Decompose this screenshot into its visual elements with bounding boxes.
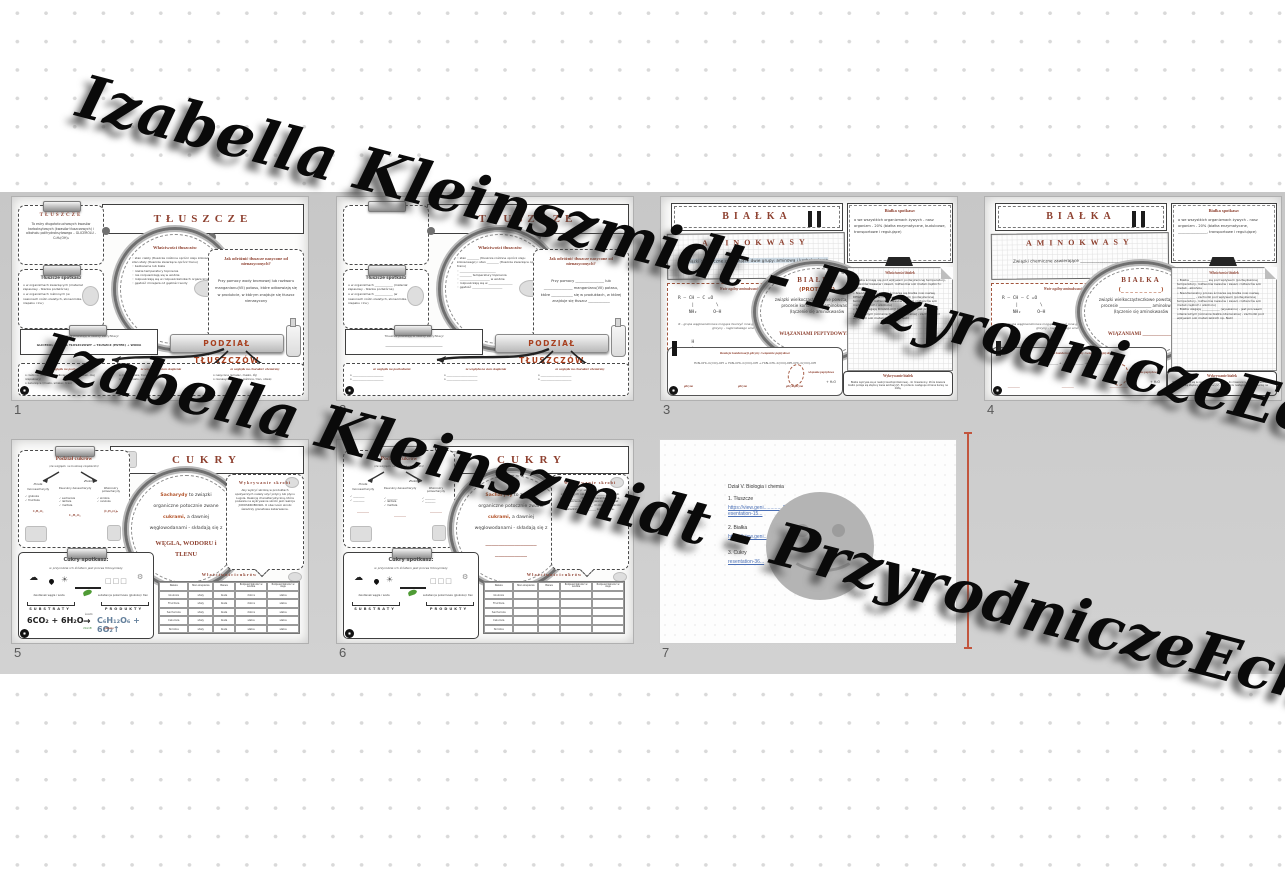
table-cell: słaba xyxy=(235,616,267,625)
slide-number-label: 6 xyxy=(339,645,346,660)
ship-clipart-icon xyxy=(407,286,424,306)
spot-title: Tłuszcze spotkasz xyxy=(344,275,428,280)
definition-box: TŁUSZCZE To estry długołańcuchowych kwas… xyxy=(18,205,104,265)
col1-text: o ______________________ o _____________… xyxy=(350,374,436,382)
detect-title: Wykrywanie białek xyxy=(844,374,952,378)
reaction-box: Reakcja kondensacji glicyny i wiązanie p… xyxy=(667,347,843,396)
table-cell: Skrobia xyxy=(484,625,513,634)
peptide-bond-label: wiązanie peptydowe xyxy=(808,370,834,374)
table-cell: słaba xyxy=(267,608,299,617)
substraty-heading: SUBSTRATY xyxy=(352,607,398,611)
substrates-label: dwutlenek węgla i woda xyxy=(348,594,400,597)
decor-dot-icon xyxy=(427,227,435,235)
substrates-label: dwutlenek węgla i woda xyxy=(23,594,75,597)
sugar-bag-clipart-icon xyxy=(432,525,446,541)
b2a-list: ✓ sacharoza✓ laktoza✓ maltoza xyxy=(59,497,93,507)
leaf-icon xyxy=(407,589,417,597)
list-item: w organizmach ____________ (w nasionach … xyxy=(348,292,408,305)
sugar-cubes-icon: □□□ xyxy=(105,577,128,585)
hole-punch-icon xyxy=(345,629,354,638)
reagent-label: ________ xyxy=(1008,384,1020,388)
table-cell: słaba xyxy=(267,599,299,608)
gear-icon: ⚙ xyxy=(137,573,143,581)
sun-icon: ☀ xyxy=(386,575,393,584)
binder-clip-icon xyxy=(885,257,913,266)
table-cell: stały xyxy=(188,625,213,634)
equation-right: C₆H₁₂O₆ + 6O₂↑ xyxy=(97,616,153,634)
table-cell: słaba xyxy=(235,625,267,634)
spot-title: Cukry spotkasz: xyxy=(19,557,153,563)
protein-spot-box: Białka spotkasz: o we wszystkich organiz… xyxy=(1171,203,1277,263)
b2-label: Złożone xyxy=(65,479,115,483)
slide-number-label: 3 xyxy=(663,402,670,417)
table-cell: słaba xyxy=(267,625,299,634)
table-cell: Rozpuszczalność w oleju xyxy=(267,582,299,591)
b2b-list: ✓ skrobia✓ celuloza xyxy=(97,497,127,504)
list-item: w organizmach zwierzęcych (materiał zapa… xyxy=(23,283,83,291)
circle-line: a dawniej xyxy=(186,515,210,520)
spot-title: Cukry spotkasz: xyxy=(344,557,478,563)
equation-left: 6CO₂ + 6H₂O xyxy=(27,616,84,625)
col2-title: ze względu na stan skupienia xyxy=(442,367,530,371)
equation-condition-top: światło xyxy=(85,613,93,616)
spot-title: Tłuszcze spotkasz xyxy=(19,275,103,280)
properties-text: • Białka ____________ się pod wpływem (p… xyxy=(1177,278,1271,320)
slide-sorter-view: { "watermark": { "text": "Izabella Klein… xyxy=(0,0,1285,869)
table-cell: Celuloza xyxy=(159,616,188,625)
gear-icon: ⚙ xyxy=(462,573,468,581)
b2a-name: Dwucukry dwusacharydy xyxy=(57,487,93,490)
b1-list: ✓ glukoza✓ fruktoza xyxy=(25,495,55,503)
col2-text: o ______________________ o _____________… xyxy=(444,374,530,382)
slide-title: CUKRY xyxy=(111,454,303,466)
table-cell: słaba xyxy=(267,591,299,600)
b1-list: ✓ ________✓ ________ xyxy=(350,495,380,503)
b2a-name: Dwucukry dwusacharydy xyxy=(382,487,418,490)
properties-title: Właściwości białek xyxy=(1172,271,1276,275)
spot-box: Tłuszcze spotkasz w organizmach zwierzęc… xyxy=(18,269,104,329)
photosynthesis-box: Cukry spotkasz: w przyrodzie ich źródłem… xyxy=(343,552,479,639)
table-cell: dobra xyxy=(235,599,267,608)
spot-list: w organizmach zwierzęcych (materiał zapa… xyxy=(23,283,83,306)
table-cell xyxy=(513,608,538,617)
table-cell xyxy=(538,591,560,600)
spot-text: o we wszystkich organizmach żywych - nas… xyxy=(854,217,946,235)
table-cell: słaba xyxy=(267,616,299,625)
table-cell xyxy=(592,599,624,608)
b2b-name: Wielocukry polisacharydy xyxy=(95,487,127,494)
ship-clipart-icon xyxy=(82,286,99,306)
ester-title: Tłuszcze powstają w reakcji estryfikacji xyxy=(346,334,482,338)
list-item: ✓ ________ xyxy=(422,500,452,503)
circle-word-red: cukrami, xyxy=(488,515,511,520)
howto-text: Przy pomocy ________________ lub _______… xyxy=(540,278,622,305)
starch-detect-box: Wykrywanie skrobi Aby wykryć skrobię w p… xyxy=(226,474,304,570)
table-cell: Rozpuszczalność w oleju xyxy=(592,582,624,591)
table-cell: Stan skupienia xyxy=(188,582,213,591)
table-cell: Glukoza xyxy=(159,591,188,600)
water-drop-icon xyxy=(373,578,380,585)
bracket-icon xyxy=(426,602,474,606)
produkty-heading: PRODUKTY xyxy=(101,607,147,611)
classification-box: Podział cukrów (ze względu na budowę czą… xyxy=(18,450,130,548)
list-item: ✓ celuloza xyxy=(97,500,127,503)
produkty-heading: PRODUKTY xyxy=(426,607,472,611)
sun-icon: ☀ xyxy=(61,575,68,584)
b2b-formula: ________ xyxy=(420,509,452,513)
table-cell: Stan skupienia xyxy=(513,582,538,591)
circle-line: to związki xyxy=(187,493,211,498)
table-cell: Rozpuszczalność w wodzie xyxy=(235,582,267,591)
slide-title: TŁUSZCZE xyxy=(103,213,303,225)
table-cell: biała xyxy=(213,591,235,600)
table-cell: biała xyxy=(213,616,235,625)
substraty-heading: SUBSTRATY xyxy=(27,607,73,611)
table-cell: stały xyxy=(188,616,213,625)
table-cell: dobra xyxy=(235,591,267,600)
table-cell xyxy=(538,599,560,608)
glucose-label: glukoza xyxy=(89,627,129,630)
b2a-formula: ________ xyxy=(382,513,418,517)
binder-clip-icon xyxy=(1209,257,1237,266)
table-cell xyxy=(560,625,592,634)
circle-word-red: Sacharydy xyxy=(160,493,187,498)
list-item: stan ciekły (tłuszcze roślinne oprócz ol… xyxy=(132,256,220,264)
table-title: W ł a ś c i w o ś c i c u k r ó w xyxy=(481,572,627,577)
b2a-formula: C₁₂H₂₂O₁₁ xyxy=(57,513,93,517)
table-cell: biała xyxy=(213,625,235,634)
table-cell xyxy=(513,616,538,625)
product-label: glicyloglicyna xyxy=(786,384,803,388)
table-cell xyxy=(560,599,592,608)
col3-text: o ______________________ o _____________… xyxy=(538,374,624,382)
table-cell xyxy=(592,616,624,625)
table-cell: Barwa xyxy=(538,582,560,591)
sugar-cubes-clipart-icon xyxy=(350,526,372,542)
table-cell xyxy=(592,608,624,617)
products-label: substancje pokarmowe (glukoza) i tlen xyxy=(422,594,474,597)
hole-punch-icon xyxy=(345,386,354,395)
classification-box: ze względu na pochodzenie o ____________… xyxy=(343,363,629,396)
spot-subtitle: w przyrodzie ich źródłem jest proces fot… xyxy=(19,566,153,570)
spot-title: Białka spotkasz: xyxy=(848,208,952,213)
reaction-arrow-icon xyxy=(400,587,426,589)
table-cell xyxy=(538,616,560,625)
hole-punch-icon xyxy=(993,386,1002,395)
podzial-title: Podział cukrów xyxy=(19,456,129,462)
spot-list: w organizmach ____________ (materiał zap… xyxy=(348,283,408,306)
table-cell: stały xyxy=(188,599,213,608)
slide-thumbnail-5[interactable]: CUKRY Podział cukrów (ze względu na budo… xyxy=(12,440,308,643)
list-item: w organizmach roślinnych (w nasionach ro… xyxy=(23,292,83,305)
water-label: + H₂O xyxy=(826,380,836,385)
table-cell: dobra xyxy=(235,608,267,617)
protein-spot-box: Białka spotkasz: o we wszystkich organiz… xyxy=(847,203,953,263)
slide-number-label: 7 xyxy=(662,645,669,660)
b1-formula: C₆H₁₂O₆ xyxy=(21,509,55,513)
detect-text: Aby wykryć skrobię w produktach spożywcz… xyxy=(232,489,298,512)
table-cell: Fruktoza xyxy=(484,599,513,608)
table-cell xyxy=(538,625,560,634)
b1-name: monosacharydy xyxy=(21,488,55,492)
title-banner: TŁUSZCZE xyxy=(102,204,304,234)
table-cell: Barwa xyxy=(213,582,235,591)
slide-number-label: 4 xyxy=(987,402,994,417)
bottle-icon xyxy=(611,325,626,357)
hole-punch-icon xyxy=(669,386,678,395)
table-cell: Skrobia xyxy=(159,625,188,634)
cloud-icon: ☁ xyxy=(29,573,38,583)
table-cell: Sacharoza xyxy=(484,608,513,617)
b1-formula: ________ xyxy=(346,509,380,513)
bottle-icon xyxy=(286,325,301,357)
b2a-list: ✓ ________✓ laktoza✓ maltoza xyxy=(384,497,418,507)
col1-title: ze względu na pochodzenie xyxy=(348,367,436,371)
spot-box: Tłuszcze spotkasz w organizmach ________… xyxy=(343,269,429,329)
howto-text: Przy pomocy wody bromowej lub roztworu m… xyxy=(215,278,297,305)
list-item: stan ________ (tłuszcze roślinne oprócz … xyxy=(457,256,545,269)
detect-title: Wykrywanie skrobi xyxy=(227,480,303,485)
table-cell xyxy=(560,616,592,625)
table-cell xyxy=(513,625,538,634)
table-cell: Nazwa xyxy=(484,582,513,591)
list-item: ✓ maltoza xyxy=(384,504,418,507)
paper-clip-icon xyxy=(43,201,81,212)
table-cell: Celuloza xyxy=(484,616,513,625)
list-item: ✓ ________ xyxy=(350,499,380,503)
spot-subtitle: w przyrodzie ich źródłem jest proces fot… xyxy=(344,566,478,570)
b2b-formula: (C₆H₁₀O₅)ₙ xyxy=(95,509,127,513)
table-cell: biała xyxy=(213,599,235,608)
slide-number-label: 5 xyxy=(14,645,21,660)
sugar-cubes-icon: □□□ xyxy=(430,577,453,585)
reaction-title: Reakcja kondensacji glicyny i wiązanie p… xyxy=(668,351,842,355)
reaction-formula: H₂N–CH₂–C(=O)–OH + H₂N–CH₂–C(=O)–OH → H₂… xyxy=(672,361,838,365)
slide-number-label: 1 xyxy=(14,402,21,417)
bracket-icon xyxy=(101,602,149,606)
table-cell xyxy=(592,591,624,600)
section-heading: Dział V. Biologia i chemia xyxy=(728,484,888,490)
detect-box: Wykrywanie białek Białka wykrywa się w r… xyxy=(843,371,953,396)
spot-title: Białka spotkasz: xyxy=(1172,208,1276,213)
amino-formula: R – CH – C =O | \ NH₂ O–H xyxy=(678,296,721,316)
bracket-icon xyxy=(352,602,400,606)
table-cell xyxy=(538,608,560,617)
table-cell xyxy=(560,591,592,600)
water-drop-icon xyxy=(48,578,55,585)
sugar-bag-clipart-icon xyxy=(107,525,121,541)
decor-dot-icon xyxy=(102,227,110,235)
sugar-properties-table: NazwaStan skupieniaBarwaRozpuszczalność … xyxy=(483,581,625,634)
definition-text: To estry długołańcuchowych kwasów karbok… xyxy=(23,222,99,241)
howto-title: Jak odróżnić tłuszcze nasycone od nienas… xyxy=(213,256,299,266)
list-item: ✓ fruktoza xyxy=(25,499,55,503)
detect-text: Białka wykrywa się w reakcji ksantoprote… xyxy=(848,381,948,390)
reaction-arrow-icon xyxy=(75,587,101,589)
staple-clip-icon xyxy=(808,211,821,227)
table-cell: Fruktoza xyxy=(159,599,188,608)
sugar-properties-table: NazwaStan skupieniaBarwaRozpuszczalność … xyxy=(158,581,300,634)
hole-punch-icon xyxy=(20,629,29,638)
table-cell xyxy=(513,591,538,600)
products-label: substancje pokarmowe (glukoza) i tlen xyxy=(97,594,149,597)
circle-word-red: cukrami, xyxy=(163,515,186,520)
col3-title: ze względu na charakter chemiczny xyxy=(536,367,624,371)
list-item: ✓ maltoza xyxy=(59,504,93,507)
table-cell: stały xyxy=(188,591,213,600)
reagent-label: glicyna xyxy=(684,384,693,388)
table-cell: Rozpuszczalność w wodzie xyxy=(560,582,592,591)
staple-clip-icon xyxy=(1132,211,1145,227)
equation-arrow-icon: → xyxy=(83,617,91,627)
amino-title: AMINOKWASY xyxy=(992,237,1168,248)
leaf-icon xyxy=(82,589,92,597)
definition-title: TŁUSZCZE xyxy=(19,213,103,218)
sugar-table-box: W ł a ś c i w o ś c i c u k r ó w NazwaS… xyxy=(481,572,627,636)
table-cell: Nazwa xyxy=(159,582,188,591)
photosynthesis-box: Cukry spotkasz: w przyrodzie ich źródłem… xyxy=(18,552,154,639)
table-cell: stały xyxy=(188,608,213,617)
podzial-subtitle: (ze względu na budowę cząsteczki) xyxy=(19,465,129,469)
table-cell xyxy=(592,625,624,634)
table-cell: Glukoza xyxy=(484,591,513,600)
table-title: W ł a ś c i w o ś c i c u k r ó w xyxy=(156,572,302,577)
table-cell xyxy=(560,608,592,617)
hole-punch-icon xyxy=(20,386,29,395)
reagent-label: glicyna xyxy=(738,384,747,388)
sugar-cubes-clipart-icon xyxy=(25,526,47,542)
list-item: w organizmach ____________ (materiał zap… xyxy=(348,283,408,291)
table-cell: Sacharoza xyxy=(159,608,188,617)
table-cell xyxy=(513,599,538,608)
cloud-icon: ☁ xyxy=(354,573,363,583)
b2b-list: ✓ ________✓ ________ xyxy=(422,497,452,504)
b1-name: monosacharydy xyxy=(346,488,380,492)
spot-text: o we wszystkich organizmach żywych - nas… xyxy=(1178,217,1270,235)
table-cell: biała xyxy=(213,608,235,617)
sugar-table-box: W ł a ś c i w o ś c i c u k r ó w NazwaS… xyxy=(156,572,302,636)
bracket-icon xyxy=(27,602,75,606)
